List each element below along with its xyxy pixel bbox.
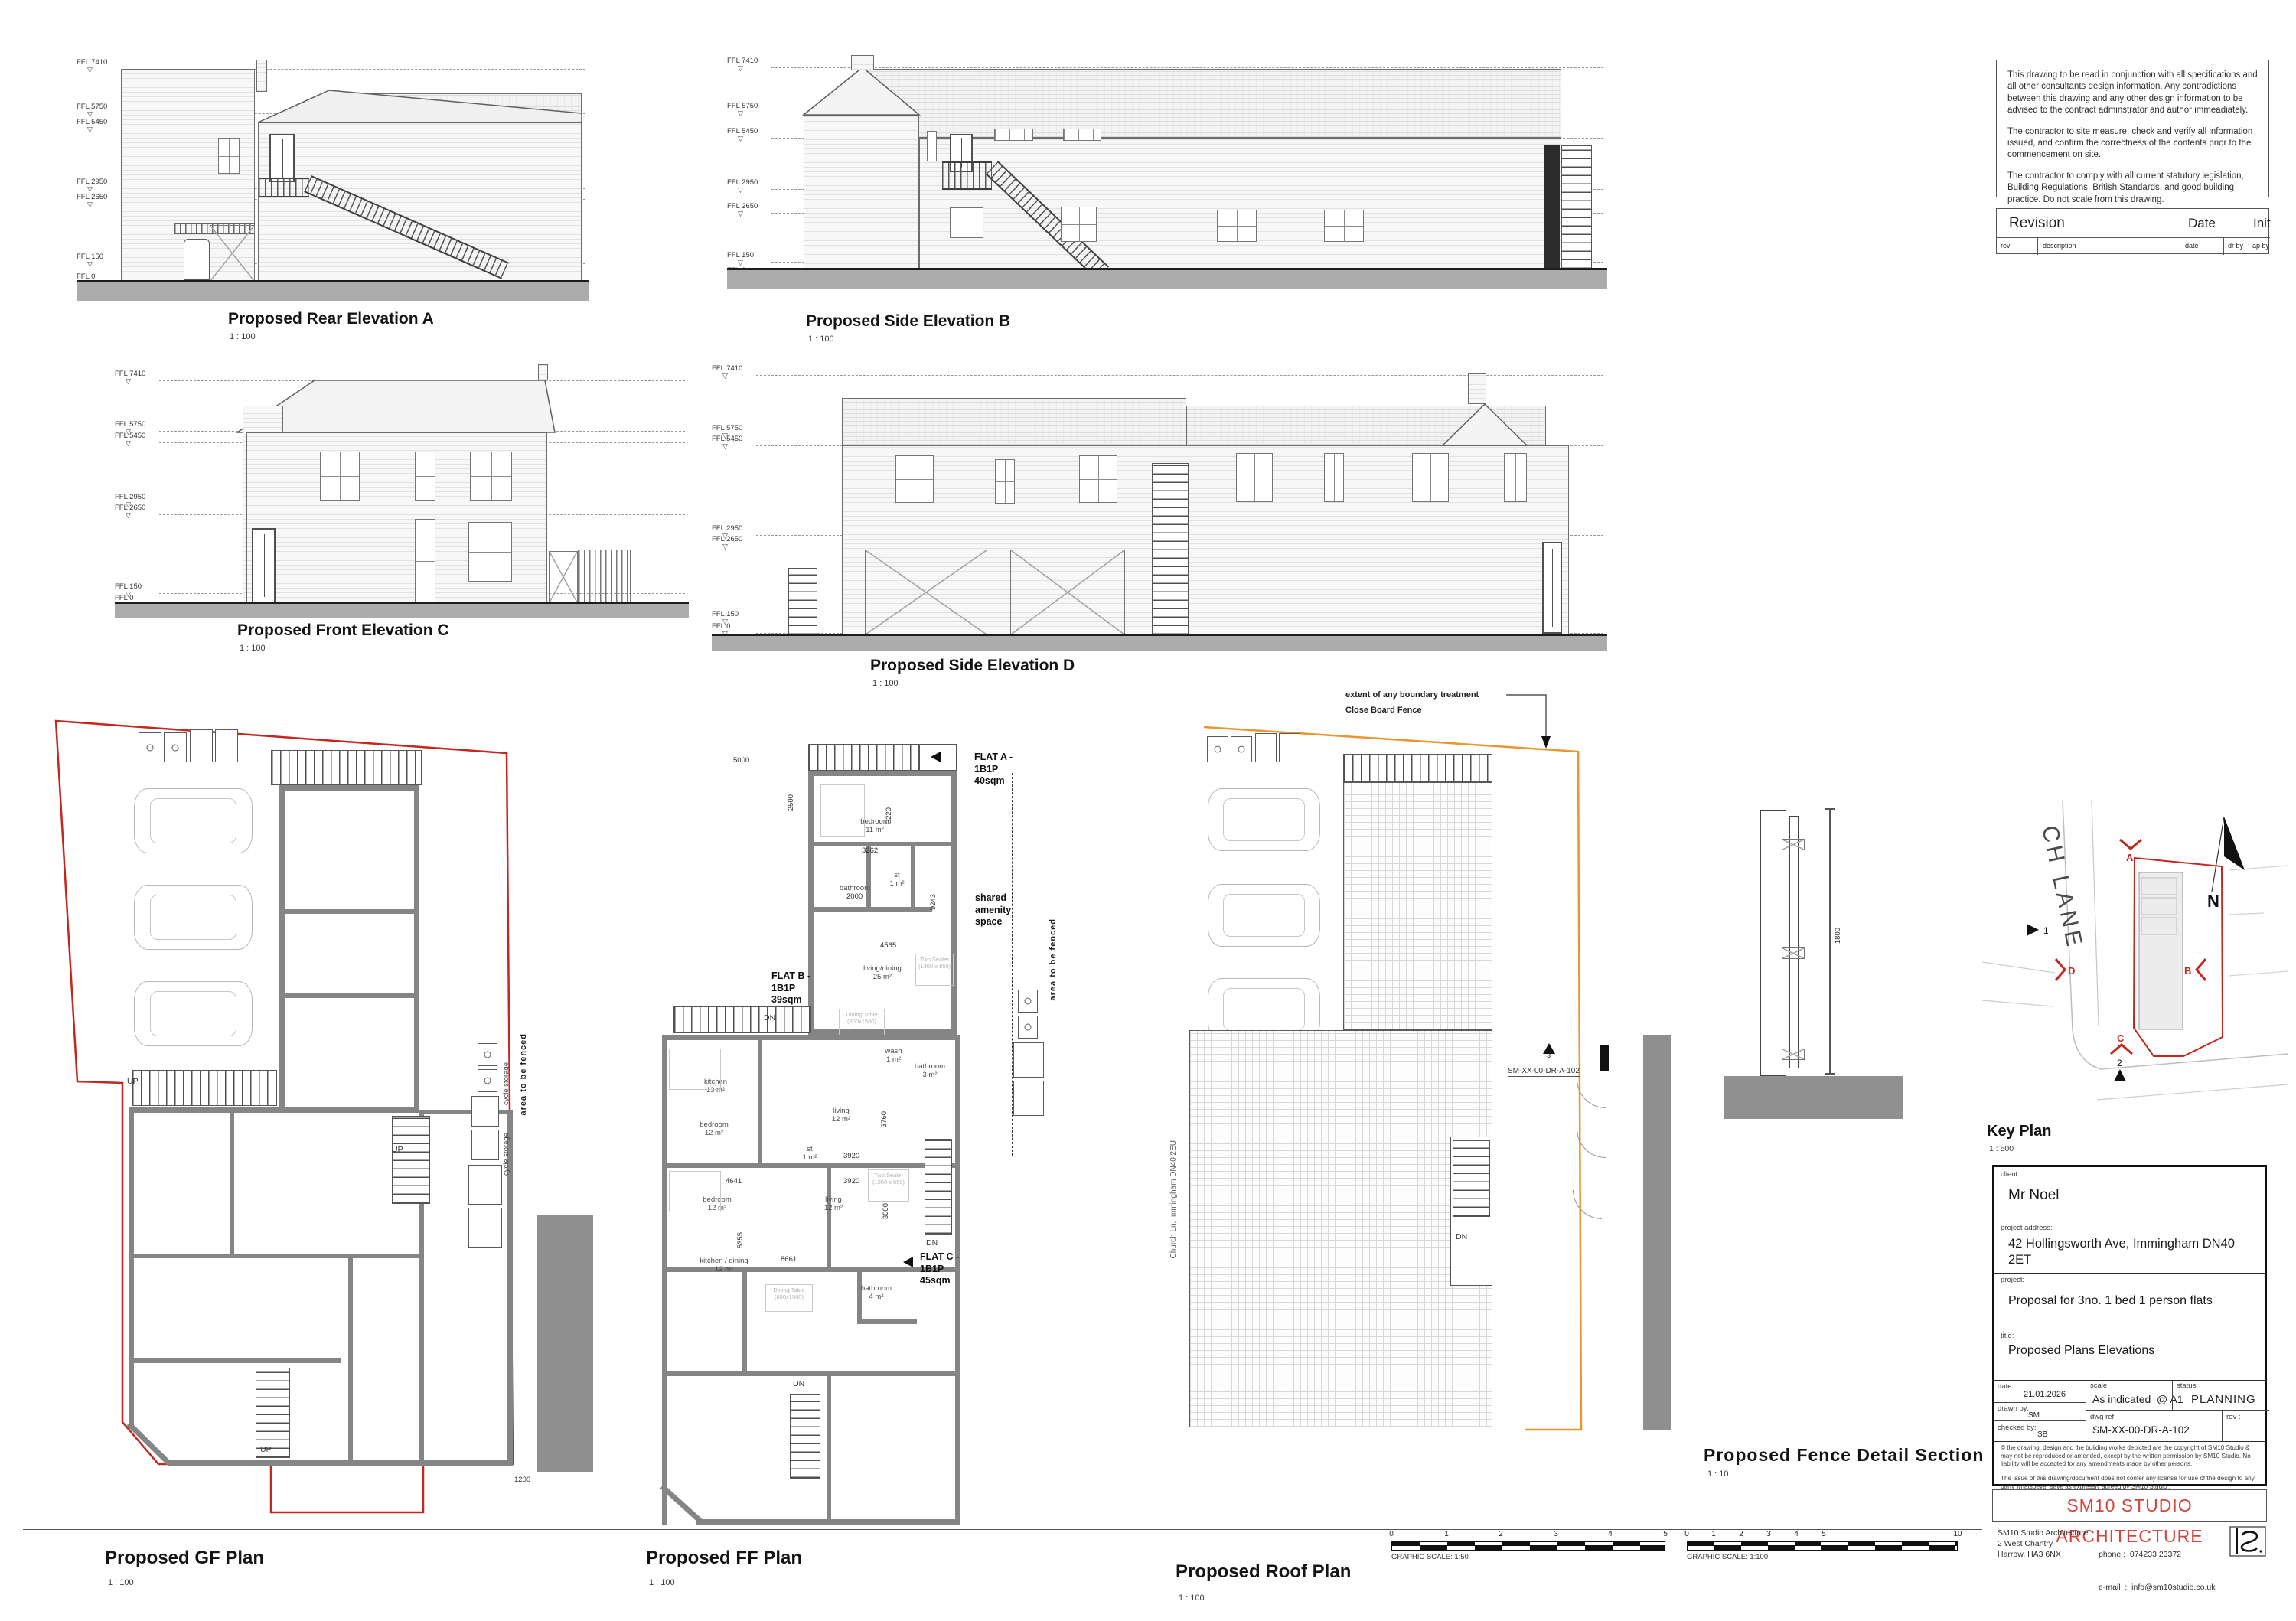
stair-direction: UP xyxy=(127,1077,139,1086)
status-value: PLANNING xyxy=(2191,1393,2256,1406)
wall xyxy=(742,1267,747,1376)
external-stair xyxy=(271,750,422,785)
dwg-ref-cell: dwg ref: SM-XX-00-DR-A-102 xyxy=(2086,1411,2222,1441)
section-marker-2-icon xyxy=(2114,1069,2126,1081)
room-label: bathroom xyxy=(828,884,882,892)
view-title: Proposed Side Elevation D xyxy=(870,657,1075,675)
room-label: bedroom 12 m² xyxy=(687,1120,741,1138)
view-rear-elevation-a: FFL 7410▽ FFL 5750▽ FFL 5450▽ FFL 2950▽ … xyxy=(77,46,589,352)
car xyxy=(134,788,253,853)
stair-tower xyxy=(1544,145,1560,268)
bin xyxy=(190,729,213,762)
roof-outline xyxy=(727,46,1607,306)
cycle-store xyxy=(471,1130,499,1160)
room-label: st 1 m² xyxy=(793,1145,827,1163)
view-scale: 1 : 100 xyxy=(240,644,266,653)
window xyxy=(1079,455,1117,503)
balcony-railing xyxy=(942,161,992,190)
external-stair xyxy=(132,1070,277,1106)
chimney xyxy=(256,60,267,92)
note-paragraph: The contractor to comply with all curren… xyxy=(2007,171,2258,206)
window xyxy=(927,131,937,161)
external-stair xyxy=(788,568,817,635)
car xyxy=(1208,884,1320,947)
roof-surface xyxy=(1189,1030,1492,1427)
init-header: Init xyxy=(2249,209,2270,238)
dimension: 3920 xyxy=(843,1177,859,1186)
entrance-door xyxy=(252,528,276,603)
chimney xyxy=(851,55,874,70)
note-paragraph: The contractor to site measure, check an… xyxy=(2007,126,2258,161)
title-block: client: Mr Noel project address: 42 Holl… xyxy=(1992,1165,2267,1486)
bin-store-gate xyxy=(210,225,255,282)
view-side-elevation-d: FFL 7410▽ FFL 5750▽ FFL 5450▽ FFL 2950▽ … xyxy=(712,344,1607,681)
scale-bar-row xyxy=(1391,1545,1665,1551)
ground xyxy=(77,282,589,301)
wall xyxy=(134,1358,341,1363)
bed xyxy=(669,1049,721,1090)
fence-line xyxy=(1012,773,1013,1156)
apby-col-label: ap by xyxy=(2249,238,2270,255)
view-title: Proposed Front Elevation C xyxy=(237,621,449,640)
view-scale: 1 : 100 xyxy=(230,332,256,341)
wall xyxy=(951,771,957,1035)
window xyxy=(994,129,1033,141)
view-scale: 1 : 100 xyxy=(649,1578,675,1587)
dimension: 9243 xyxy=(929,894,938,910)
scale-tick: 10 xyxy=(1953,1530,1962,1538)
cycle-store xyxy=(1013,1042,1044,1078)
stair-direction: DN xyxy=(764,1013,775,1023)
address-row: project address: 42 Hollingsworth Ave, I… xyxy=(1994,1221,2265,1274)
window xyxy=(320,452,360,501)
view-scale: 1 : 10 xyxy=(1707,1469,1729,1479)
studio-address-line: 2 West Chantry xyxy=(1998,1538,2088,1549)
elevation-marker-c-icon xyxy=(2111,1045,2132,1054)
status-label: status: xyxy=(2177,1381,2198,1390)
view-key-plan: A B D C 1 2 N CH LANE Key Plan 1 : 500 xyxy=(1982,800,2288,1163)
scale-tick: 1 xyxy=(1444,1530,1449,1538)
window xyxy=(950,207,983,238)
view-front-elevation-c: FFL 7410▽ FFL 5750▽ FFL 5450▽ FFL 2950▽ … xyxy=(115,344,689,674)
dimension: 3220 xyxy=(885,807,893,824)
wall xyxy=(279,909,419,914)
window xyxy=(1236,453,1273,502)
wall xyxy=(827,1376,831,1525)
scale-value: As indicated @ A1 xyxy=(2092,1393,2183,1405)
wall xyxy=(230,1107,234,1254)
wall xyxy=(662,1163,960,1168)
door xyxy=(269,134,295,182)
description-col-label: description xyxy=(2037,238,2180,255)
bin xyxy=(1279,733,1300,762)
window xyxy=(1061,207,1097,242)
view-title: Proposed Side Elevation B xyxy=(806,312,1010,331)
scale-label: scale: xyxy=(2090,1381,2109,1390)
dimension: 1800 xyxy=(1834,928,1842,944)
wall-segment xyxy=(1600,1045,1609,1071)
window xyxy=(415,519,435,603)
studio-banner: SM10 STUDIO ARCHITECTURE xyxy=(1992,1489,2267,1522)
wall xyxy=(955,1376,960,1525)
window xyxy=(1217,210,1257,242)
window xyxy=(470,452,512,501)
roof-outline xyxy=(77,46,589,306)
car xyxy=(134,885,253,950)
area-to-be-fenced-label: area to be fenced xyxy=(519,1033,528,1115)
checked-cell: checked by: SB xyxy=(1994,1421,2086,1441)
wall xyxy=(348,1254,353,1466)
graphic-scale-bar: 0 1 2 3 4 5 10 GRAPHIC SCALE: 1:100 xyxy=(1687,1541,1958,1550)
dimension: 1200 xyxy=(514,1476,530,1484)
section-marker-1-icon xyxy=(2027,924,2039,936)
bin xyxy=(1207,736,1228,762)
rev-label: rev : xyxy=(2226,1413,2240,1421)
dwg-ref-value: SM-XX-00-DR-A-102 xyxy=(2092,1424,2190,1436)
elevation-marker-a-icon xyxy=(2120,840,2141,849)
window xyxy=(1412,453,1449,502)
scale-tick: 5 xyxy=(1821,1530,1826,1538)
wall xyxy=(279,785,419,791)
window xyxy=(1324,453,1344,502)
wall xyxy=(279,785,285,1107)
room-label: living 12 m² xyxy=(808,1195,859,1213)
wall xyxy=(129,1107,419,1113)
view-scale: 1 : 100 xyxy=(1179,1593,1205,1603)
elevation-marker-letter: B xyxy=(2184,965,2191,977)
client-value: Mr Noel xyxy=(2008,1187,2060,1204)
bin xyxy=(164,732,187,762)
bay-wall xyxy=(129,1424,171,1465)
scale-label: GRAPHIC SCALE: 1:50 xyxy=(1391,1553,1469,1561)
project-value: Proposal for 3no. 1 bed 1 person flats xyxy=(2008,1294,2261,1308)
door xyxy=(1542,542,1562,634)
neighbour-building xyxy=(537,1215,593,1472)
scale-label: GRAPHIC SCALE: 1:100 xyxy=(1687,1553,1768,1561)
room-label: bedroom 11 m² xyxy=(848,817,902,835)
bin xyxy=(1018,1016,1038,1039)
wall xyxy=(857,1319,917,1324)
view-scale: 1 : 100 xyxy=(808,334,834,344)
car xyxy=(1208,788,1320,851)
dimension: 2000 xyxy=(846,892,863,901)
view-scale: 1 : 100 xyxy=(108,1578,134,1587)
road-line xyxy=(2092,800,2099,1026)
north-label: N xyxy=(2207,892,2219,911)
wall xyxy=(808,842,957,846)
chimney xyxy=(538,364,548,380)
wall xyxy=(279,993,419,998)
address-value: 42 Hollingsworth Ave, Immingham DN40 2ET xyxy=(2008,1236,2255,1267)
room-label: living/dining 25 m² xyxy=(848,964,917,982)
view-roof-plan: extent of any boundary treatment Close B… xyxy=(1148,689,1684,1538)
scale-tick: 5 xyxy=(1663,1530,1668,1538)
revision-table: Revision Date Init rev description date … xyxy=(1996,208,2269,254)
flat-label: FLAT C - 1B1P 45sqm xyxy=(920,1251,959,1287)
copyright-note: © the drawing, design and the building w… xyxy=(2001,1444,2261,1491)
internal-stair xyxy=(925,1139,952,1235)
scale-tick: 3 xyxy=(1554,1530,1558,1538)
gable-roof xyxy=(804,67,919,115)
dimension-tick xyxy=(1825,1073,1835,1075)
studio-logo-icon xyxy=(2229,1526,2266,1557)
wall xyxy=(955,1035,960,1376)
view-gf-plan: UP UP UP cycle storage cycle storage are… xyxy=(46,704,616,1538)
wall xyxy=(662,1035,960,1040)
client-label: client: xyxy=(2001,1170,2020,1179)
dimension: 5000 xyxy=(733,756,749,765)
window xyxy=(1063,129,1101,141)
shared-amenity-label: shared amenity space xyxy=(975,892,1011,928)
drawn-by-label: drawn by: xyxy=(1998,1404,2029,1413)
car xyxy=(134,981,253,1046)
ground xyxy=(712,636,1607,651)
drawing-title-label: title: xyxy=(2001,1332,2014,1340)
window xyxy=(415,452,435,501)
dimension: 2500 xyxy=(787,794,795,810)
scale-tick: 2 xyxy=(1499,1530,1503,1538)
project-row: project: Proposal for 3no. 1 bed 1 perso… xyxy=(1994,1273,2265,1329)
fence-board xyxy=(1789,816,1799,1068)
site-building xyxy=(2139,872,2183,1029)
window xyxy=(1504,453,1527,502)
cycle-store xyxy=(468,1165,502,1205)
garage-door xyxy=(865,550,987,635)
bin xyxy=(1255,733,1277,762)
graphic-scale-bar: 0 1 2 3 4 5 GRAPHIC SCALE: 1:50 xyxy=(1391,1541,1665,1550)
view-title: Proposed Roof Plan xyxy=(1176,1561,1351,1583)
elevation-marker-d-icon xyxy=(2056,959,2065,980)
dimension: 4641 xyxy=(726,1177,742,1186)
section-marker-number: 2 xyxy=(2117,1058,2122,1068)
garage-door xyxy=(1010,550,1125,635)
room-label: bathroom 3 m² xyxy=(905,1062,955,1080)
rev-cell: rev : xyxy=(2222,1411,2269,1441)
drby-col-label: dr by xyxy=(2223,238,2249,255)
view-title: Proposed Fence Detail Section xyxy=(1704,1445,1984,1466)
drawn-cell: drawn by: SM xyxy=(1994,1403,2086,1421)
window xyxy=(1324,210,1364,242)
scale-tick: 4 xyxy=(1794,1530,1799,1538)
flat-a-arrow-icon xyxy=(931,752,941,762)
flat-label: FLAT B - 1B1P 39sqm xyxy=(771,970,810,1006)
flat-label: FLAT A - 1B1P 40sqm xyxy=(974,752,1013,788)
external-stair xyxy=(1152,463,1189,635)
title-row: title: Proposed Plans Elevations xyxy=(1994,1329,2265,1381)
neighbour-building xyxy=(1643,1035,1671,1430)
side-gate xyxy=(549,551,578,603)
copyright-text: © the drawing, design and the building w… xyxy=(2001,1444,2261,1469)
drawing-title-value: Proposed Plans Elevations xyxy=(2008,1344,2154,1358)
view-scale: 1 : 100 xyxy=(872,679,899,688)
dimension: 3000 xyxy=(882,1203,890,1219)
window xyxy=(895,455,934,503)
window xyxy=(468,522,512,582)
scale-tick: 4 xyxy=(1608,1530,1613,1538)
status-cell: status: PLANNING xyxy=(2172,1380,2269,1411)
drawing-sheet: FFL 7410▽ FFL 5750▽ FFL 5450▽ FFL 2950▽ … xyxy=(0,0,2296,1621)
section-marker-number: 1 xyxy=(2043,925,2049,936)
studio-email: e-mail : info@sm10studio.co.uk xyxy=(2099,1582,2215,1593)
stair-direction: UP xyxy=(392,1145,403,1154)
studio-contact: phone : 074233 23372 e-mail : info@sm10s… xyxy=(2099,1528,2215,1603)
leader-line xyxy=(1506,695,1546,736)
studio-address-line: Harrow, HA3 6NX xyxy=(1998,1549,2088,1560)
bay-wall xyxy=(662,1486,703,1523)
view-side-elevation-b: FFL 7410▽ FFL 5750▽ FFL 5450▽ FFL 2950▽ … xyxy=(727,46,1607,352)
roof-surface xyxy=(1343,782,1492,1030)
sofa: Two Seater (1300 x 850) xyxy=(868,1169,909,1202)
general-notes: This drawing to be read in conjunction w… xyxy=(1996,60,2269,197)
fence xyxy=(578,550,631,603)
wall xyxy=(129,1107,134,1429)
view-ff-plan: FLAT A - 1B1P 40sqm Dining Table (800x15… xyxy=(651,712,1068,1538)
scale-tick: 0 xyxy=(1389,1530,1394,1538)
elevation-marker-letter: A xyxy=(2126,852,2134,863)
scale-cell: scale: As indicated @ A1 xyxy=(2086,1380,2172,1411)
elevation-marker-b-icon xyxy=(2197,959,2206,980)
dimension: 8661 xyxy=(781,1255,797,1264)
bin xyxy=(215,729,238,762)
view-title: Key Plan xyxy=(1987,1123,2051,1140)
revision-header: Revision xyxy=(1997,209,2180,238)
cycle-store xyxy=(471,1096,499,1127)
window xyxy=(218,138,240,174)
bin xyxy=(139,732,161,762)
external-stair xyxy=(1343,754,1492,782)
main-roof xyxy=(237,380,555,432)
chimney xyxy=(1468,373,1486,404)
dimension-tick xyxy=(1825,808,1835,810)
drawn-by-value: SM xyxy=(2028,1411,2040,1420)
gable-roof xyxy=(1443,404,1527,445)
wall xyxy=(662,1035,667,1376)
scale-tick: 1 xyxy=(1711,1530,1716,1538)
date-col-label: date xyxy=(2180,238,2223,255)
view-scale: 1 : 500 xyxy=(1989,1144,2014,1153)
dwg-ref-label: dwg ref: xyxy=(2090,1413,2116,1421)
sofa: Two Seater (1300 x 850) xyxy=(915,954,954,986)
view-title: Proposed GF Plan xyxy=(105,1548,264,1569)
section-marker-number: 3 xyxy=(1547,1052,1551,1059)
fence-rail xyxy=(1782,947,1805,959)
studio-phone: phone : 074233 23372 xyxy=(2099,1549,2215,1560)
info-grid: date: 21.01.2026 drawn by: SM checked by… xyxy=(1994,1380,2265,1442)
concrete-base xyxy=(1724,1076,1903,1119)
wall xyxy=(662,1376,667,1525)
leader-arrow-icon xyxy=(1541,736,1551,749)
room-label: living 12 m² xyxy=(816,1107,866,1124)
window xyxy=(995,459,1015,504)
gable-roof xyxy=(258,90,582,122)
bed xyxy=(669,1171,721,1212)
view-fence-detail: 1800 xyxy=(1714,804,1975,1125)
rev-col-label: rev xyxy=(1997,238,2037,255)
wall xyxy=(662,1371,960,1376)
checked-by-label: checked by: xyxy=(1998,1424,2037,1432)
key-plan-map: A B D C 1 2 N CH LANE xyxy=(1982,800,2288,1163)
internal-stair xyxy=(1453,1140,1490,1217)
dimension-line xyxy=(1829,810,1831,1075)
wall xyxy=(866,846,871,912)
bin xyxy=(478,1069,497,1092)
scale-bar-row xyxy=(1687,1545,1958,1551)
dimension: 4565 xyxy=(880,941,896,950)
wall xyxy=(808,771,957,776)
elevation-marker-letter: C xyxy=(2117,1032,2125,1044)
external-stair xyxy=(673,1006,811,1033)
ground xyxy=(115,604,689,618)
stair-direction: UP xyxy=(260,1445,272,1454)
room-label: kitchen / dining 12 m² xyxy=(687,1257,761,1274)
dimension: 3760 xyxy=(880,1111,889,1127)
wall xyxy=(414,785,419,1107)
elevation-marker-letter: D xyxy=(2068,965,2075,977)
balcony-railing xyxy=(259,178,309,197)
dining-table: Dining Table (800x1500) xyxy=(765,1284,813,1312)
dining-table: Dining Table (800x1500) xyxy=(839,1009,885,1036)
internal-stair xyxy=(790,1394,820,1479)
street-label: Church Ln, Immingham DN40 2EU xyxy=(1169,1140,1178,1259)
area-to-be-fenced-label: area to be fenced xyxy=(1049,918,1058,1000)
studio-name: SM10 Studio Architecture xyxy=(1998,1528,2088,1538)
room-label: bathroom 4 m² xyxy=(850,1284,903,1302)
fence-line xyxy=(510,796,510,1462)
stair-direction: DN xyxy=(1456,1232,1467,1241)
scale-tick: 0 xyxy=(1684,1530,1689,1538)
section-reference: SM-XX-00-DR-A-102 xyxy=(1508,1067,1580,1077)
fence-rail xyxy=(1782,1049,1805,1060)
view-title: Proposed Rear Elevation A xyxy=(228,310,434,328)
stair-direction: DN xyxy=(926,1238,938,1248)
note-paragraph: This drawing to be read in conjunction w… xyxy=(2007,70,2258,117)
external-stair xyxy=(808,744,919,771)
plot-line xyxy=(2229,866,2288,976)
project-label: project: xyxy=(2001,1276,2024,1284)
dimension: 3262 xyxy=(862,846,878,855)
bin xyxy=(1231,736,1252,762)
checked-by-value: SB xyxy=(2037,1430,2047,1439)
room-label: st 1 m² xyxy=(880,871,914,889)
internal-stair xyxy=(392,1116,430,1204)
bin xyxy=(478,1043,497,1066)
wall xyxy=(168,1460,513,1466)
client-row: client: Mr Noel xyxy=(1994,1167,2265,1221)
fence-rail xyxy=(1782,839,1805,850)
cycle-store xyxy=(1013,1081,1044,1116)
bin xyxy=(184,239,210,280)
external-ladder xyxy=(1561,145,1592,269)
view-title: Proposed FF Plan xyxy=(646,1548,802,1569)
studio-address: SM10 Studio Architecture 2 West Chantry … xyxy=(1998,1528,2088,1561)
wall xyxy=(758,1035,762,1168)
cycle-store xyxy=(468,1208,502,1248)
ground xyxy=(727,270,1607,289)
wall xyxy=(827,1163,831,1272)
stair-direction: DN xyxy=(793,1379,804,1388)
scale-tick: 2 xyxy=(1739,1530,1743,1538)
date-value: 21.01.2026 xyxy=(2024,1390,2066,1399)
dimension: 5355 xyxy=(736,1232,745,1248)
date-label: date: xyxy=(1998,1382,2014,1391)
dimension: 3920 xyxy=(843,1152,859,1160)
scale-tick: 3 xyxy=(1766,1530,1771,1538)
bin xyxy=(1018,990,1038,1013)
north-arrow-icon xyxy=(2224,817,2245,870)
date-cell: date: 21.01.2026 xyxy=(1994,1380,2086,1403)
wall xyxy=(129,1254,419,1258)
address-label: project address: xyxy=(2001,1224,2053,1232)
